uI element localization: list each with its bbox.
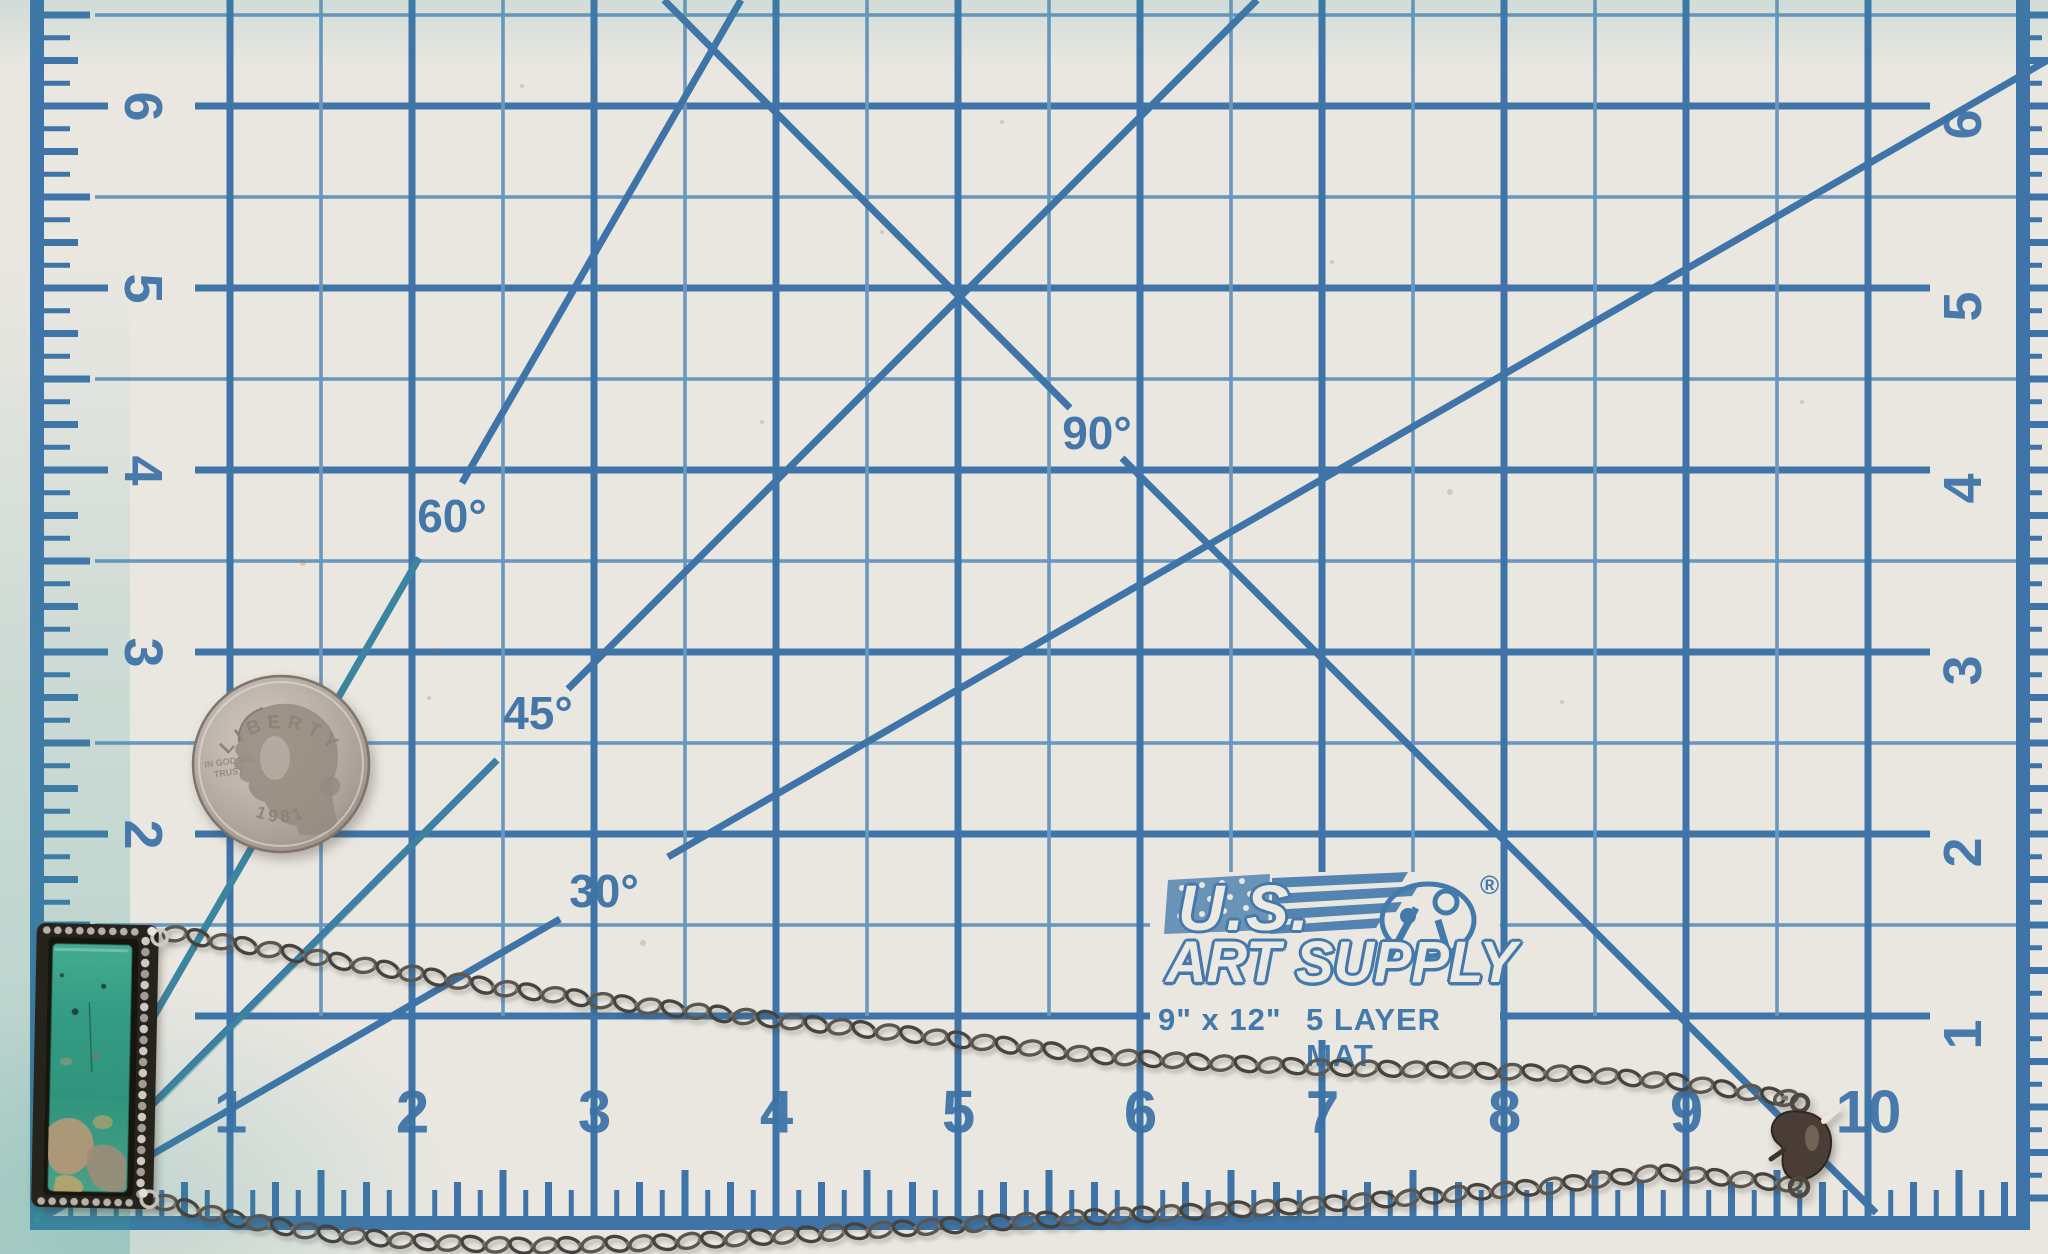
chain-link bbox=[447, 973, 471, 989]
chain-link bbox=[1737, 1084, 1761, 1100]
chain-link bbox=[1730, 1171, 1755, 1188]
chain-link bbox=[294, 1223, 318, 1239]
chain-link bbox=[923, 1029, 948, 1046]
chain-link bbox=[389, 1232, 414, 1249]
chain-link bbox=[210, 934, 234, 950]
chain-link bbox=[589, 992, 614, 1009]
chain-link bbox=[1610, 1168, 1635, 1185]
chain-link bbox=[1066, 1045, 1091, 1062]
chain-link bbox=[971, 1034, 996, 1051]
chain-link bbox=[352, 957, 376, 973]
chain-link bbox=[1682, 1166, 1707, 1183]
chain-link bbox=[1019, 1040, 1044, 1057]
chain-link bbox=[732, 1008, 757, 1025]
chain-link bbox=[258, 942, 282, 958]
chain-link-joint bbox=[1784, 1096, 1789, 1101]
chain-link bbox=[1689, 1077, 1713, 1093]
chain-link bbox=[400, 965, 424, 981]
chain-link bbox=[494, 980, 519, 997]
chain-link bbox=[828, 1018, 853, 1035]
chain-link bbox=[1563, 1174, 1588, 1191]
photo-cutting-mat-scene: 30° 45° 60° 90° 6543265432112345678910 bbox=[0, 0, 2048, 1254]
chain-link bbox=[341, 1227, 366, 1244]
chain-link bbox=[175, 1196, 202, 1219]
turquoise-bar-pendant bbox=[31, 923, 167, 1210]
chain-link bbox=[542, 986, 567, 1003]
chain-link bbox=[685, 1003, 710, 1020]
chain-upper-strand bbox=[163, 926, 1799, 1108]
chain-link bbox=[305, 950, 329, 966]
chain-lower-strand bbox=[153, 1162, 1802, 1254]
necklace bbox=[0, 0, 2048, 1254]
chain-link bbox=[780, 1013, 805, 1030]
chain-link bbox=[637, 998, 662, 1015]
chain-link bbox=[876, 1024, 901, 1041]
chain-link bbox=[200, 1206, 223, 1220]
chain-link bbox=[246, 1215, 270, 1231]
